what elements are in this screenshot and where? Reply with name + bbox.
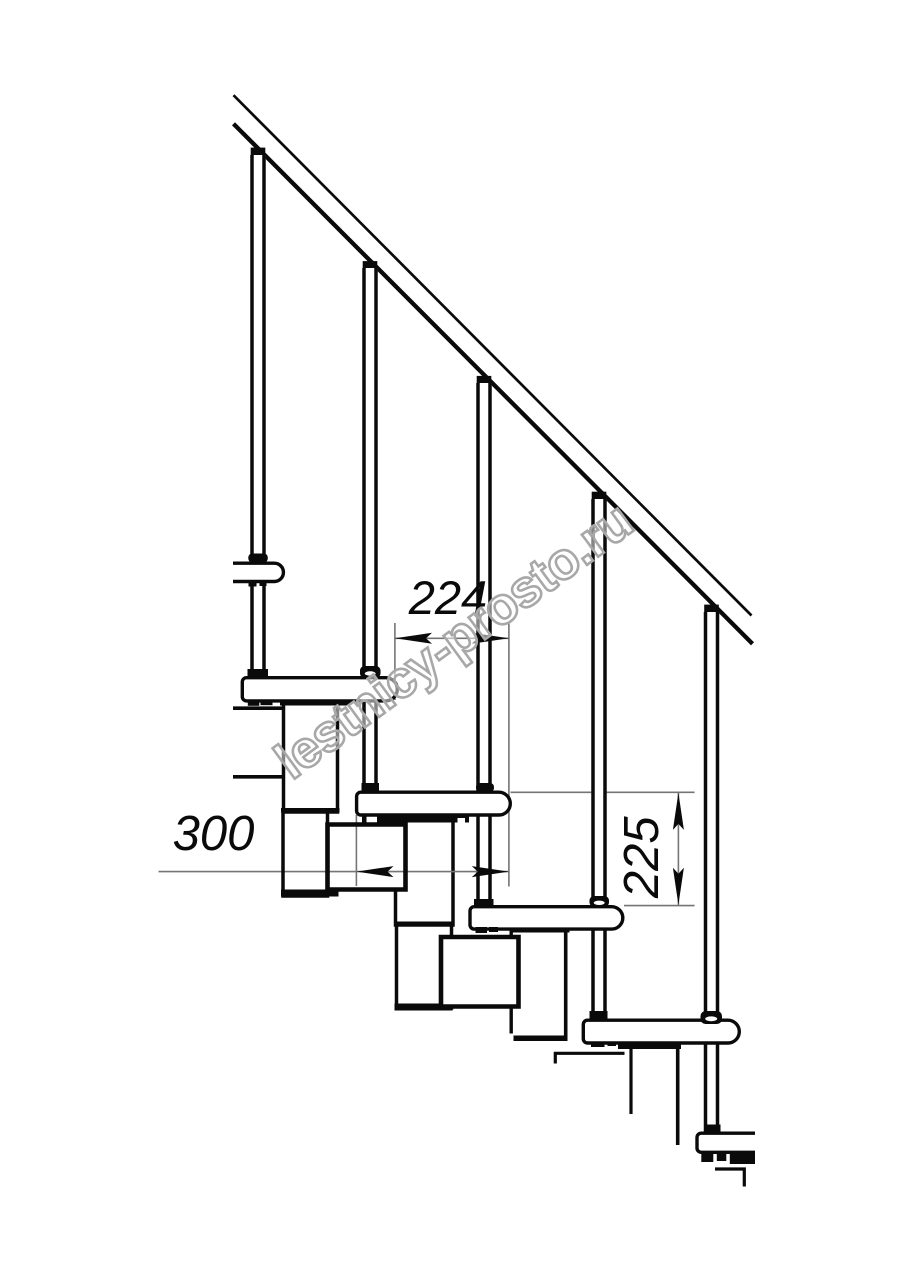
svg-text:225: 225 [615,816,669,900]
svg-text:300: 300 [173,807,255,861]
